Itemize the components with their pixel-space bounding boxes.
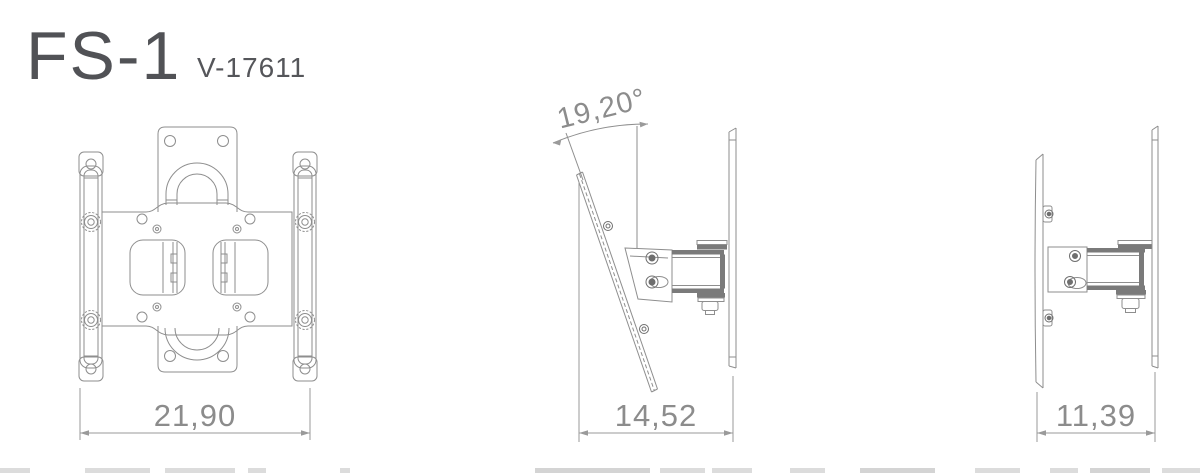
left-rail (79, 152, 103, 381)
side-view-tilted-drawing: 19,20° 14,52 (540, 80, 800, 445)
side-wall-plate-edge (1152, 126, 1158, 368)
product-title: FS-1 (26, 22, 181, 90)
tilted-tv-plate (577, 172, 658, 392)
vesa-screws (153, 225, 241, 311)
side-depth-dimension-label: 11,39 (1056, 398, 1136, 433)
bottom-wall-bracket (158, 326, 237, 372)
clamp-knobs (82, 213, 315, 330)
top-wall-bracket (158, 127, 237, 212)
side-linework (1035, 126, 1158, 388)
side-view-drawing: 11,39 (1000, 120, 1200, 445)
wall-plate-edge (729, 128, 736, 368)
cropped-bottom-row (0, 466, 1200, 473)
front-view-drawing: 21,90 (60, 110, 340, 450)
carry-handle-arch-outer (166, 163, 228, 205)
tv-plate-edge (1035, 154, 1052, 388)
product-model-number: V-17611 (197, 54, 306, 82)
vesa-plate (102, 203, 292, 335)
carry-handle-arch-inner (177, 174, 217, 205)
tilt-bracket (625, 248, 672, 302)
left-cutout (130, 240, 185, 295)
angle-annotation (553, 124, 648, 248)
right-rail (293, 152, 317, 381)
drawing-sheet: FS-1 V-17611 (0, 0, 1200, 473)
side-bracket (1048, 247, 1087, 292)
front-linework (79, 127, 317, 381)
side-support-arm (1087, 241, 1152, 313)
right-cutout (213, 240, 268, 295)
front-width-dimension-label: 21,90 (154, 398, 237, 433)
side-bracket-bolts (1065, 251, 1081, 288)
tilted-linework (553, 124, 736, 392)
support-arm (672, 241, 727, 315)
tilt-angle-label: 19,20° (554, 83, 649, 136)
tv-plate-screws (1045, 210, 1053, 322)
tilted-depth-dimension-label: 14,52 (615, 398, 698, 433)
